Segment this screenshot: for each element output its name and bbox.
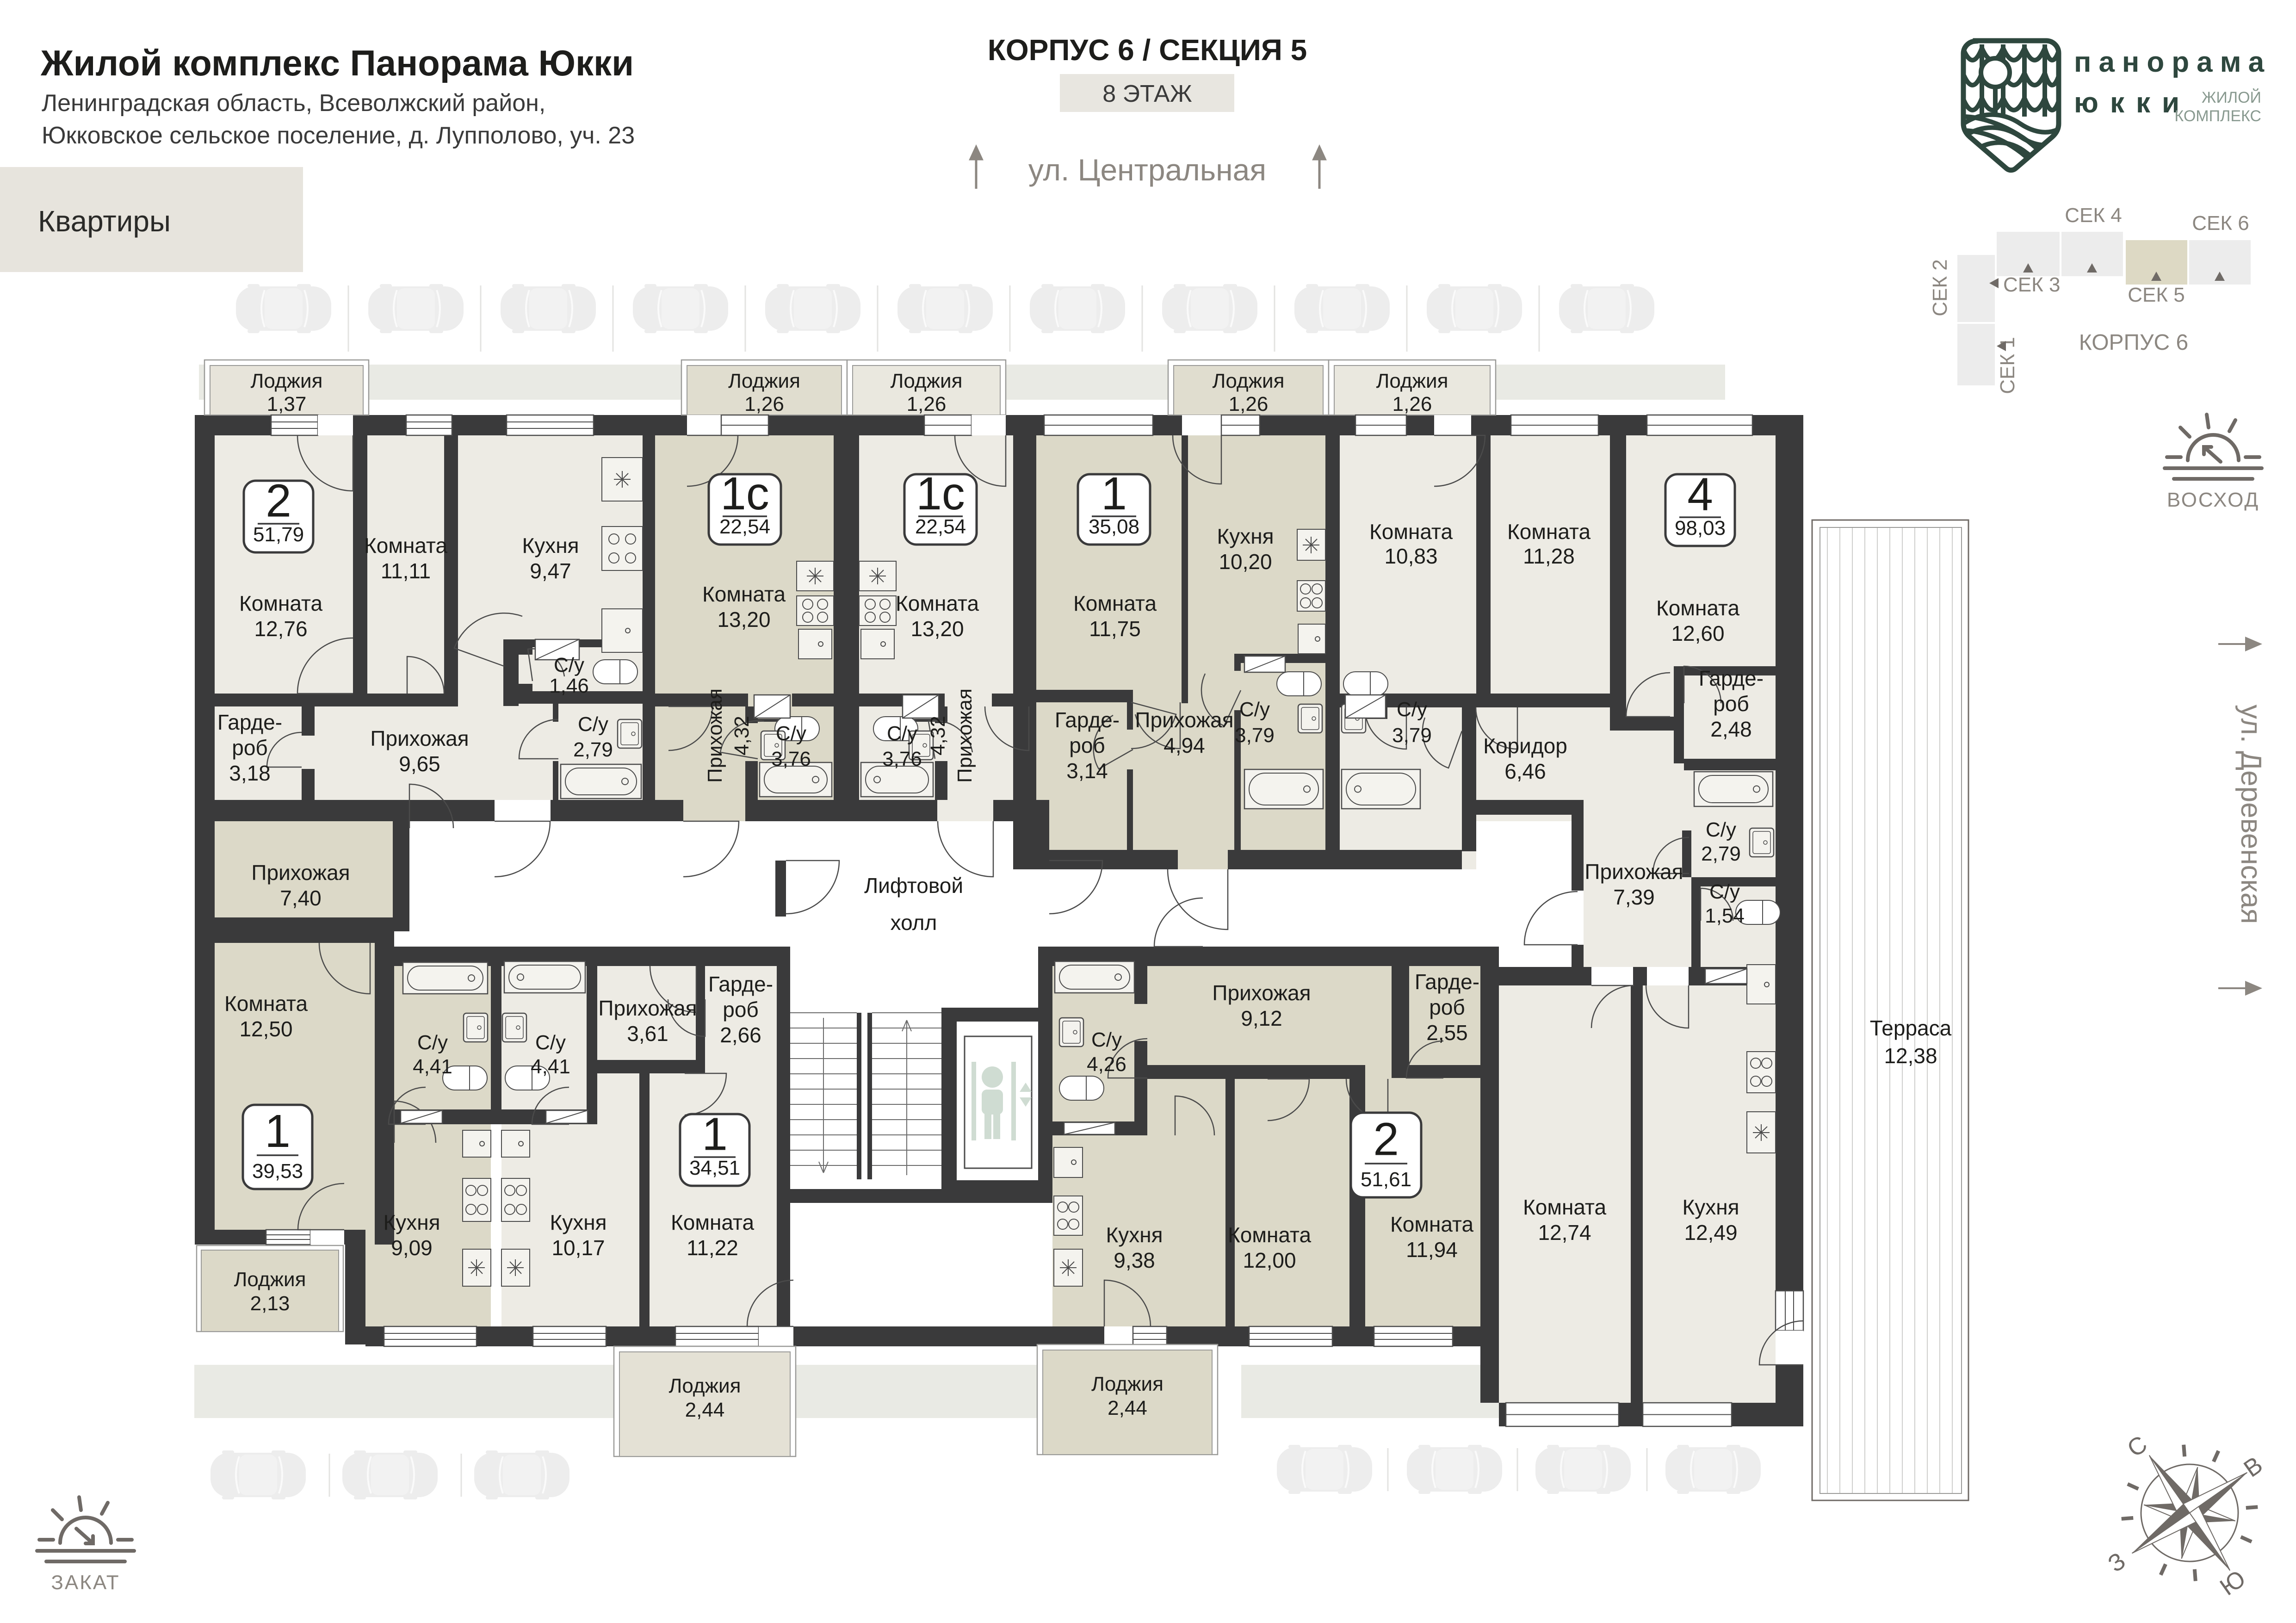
svg-text:Терраса: Терраса <box>1870 1016 1952 1040</box>
svg-text:ул. Деревенская: ул. Деревенская <box>2235 705 2267 924</box>
svg-text:12,60: 12,60 <box>1671 621 1724 645</box>
svg-text:СЕК 6: СЕК 6 <box>2192 212 2249 235</box>
svg-text:Комната: Комната <box>1656 596 1740 620</box>
svg-text:Жилой комплекс Панорама Юкки: Жилой комплекс Панорама Юкки <box>40 43 634 83</box>
svg-text:4,26: 4,26 <box>1087 1053 1126 1076</box>
svg-text:11,22: 11,22 <box>687 1236 738 1260</box>
svg-text:3,61: 3,61 <box>627 1022 668 1046</box>
svg-text:4,32: 4,32 <box>730 716 753 756</box>
svg-text:10,20: 10,20 <box>1219 550 1272 574</box>
svg-text:Кухня: Кухня <box>1682 1195 1739 1219</box>
svg-text:34,51: 34,51 <box>689 1157 740 1179</box>
svg-text:ВОСХОД: ВОСХОД <box>2167 489 2259 511</box>
svg-text:Прихожая: Прихожая <box>1212 981 1311 1005</box>
svg-text:3,18: 3,18 <box>229 761 271 785</box>
svg-text:1: 1 <box>1101 468 1127 520</box>
svg-text:3,76: 3,76 <box>882 748 922 770</box>
svg-text:Комната: Комната <box>702 582 786 606</box>
svg-text:Лоджия: Лоджия <box>669 1375 741 1397</box>
svg-text:10,17: 10,17 <box>551 1236 605 1260</box>
svg-text:51,61: 51,61 <box>1361 1168 1411 1191</box>
svg-text:1: 1 <box>265 1105 291 1157</box>
svg-text:ЖИЛОЙ: ЖИЛОЙ <box>2202 89 2261 106</box>
svg-text:роб: роб <box>723 997 759 1022</box>
svg-text:1с: 1с <box>720 468 769 520</box>
svg-text:Кухня: Кухня <box>1217 524 1274 548</box>
svg-text:1,26: 1,26 <box>1229 393 1269 415</box>
svg-text:Комната: Комната <box>1523 1195 1607 1219</box>
svg-text:4,41: 4,41 <box>531 1055 570 1078</box>
svg-text:39,53: 39,53 <box>252 1160 303 1183</box>
svg-text:2,79: 2,79 <box>573 738 613 761</box>
svg-text:Комната: Комната <box>364 533 448 558</box>
svg-text:11,11: 11,11 <box>381 559 431 583</box>
svg-text:С/у: С/у <box>578 713 608 736</box>
svg-text:роб: роб <box>1713 692 1749 716</box>
svg-text:2,66: 2,66 <box>720 1023 761 1047</box>
svg-text:10,83: 10,83 <box>1384 544 1437 568</box>
svg-text:Комната: Комната <box>1507 520 1591 544</box>
svg-text:КОРПУС 6: КОРПУС 6 <box>2079 330 2188 355</box>
svg-text:КОРПУС 6 / СЕКЦИЯ 5: КОРПУС 6 / СЕКЦИЯ 5 <box>988 33 1307 67</box>
svg-text:Лоджия: Лоджия <box>234 1268 306 1291</box>
svg-text:панорама: панорама <box>2074 46 2271 78</box>
svg-text:11,94: 11,94 <box>1406 1238 1458 1262</box>
svg-text:Комната: Комната <box>1390 1212 1474 1236</box>
svg-text:Лоджия: Лоджия <box>1213 370 1285 392</box>
svg-text:2,44: 2,44 <box>1108 1397 1147 1419</box>
svg-text:Комната: Комната <box>224 991 308 1016</box>
svg-text:С/у: С/у <box>1091 1028 1122 1051</box>
svg-text:8 ЭТАЖ: 8 ЭТАЖ <box>1102 81 1192 107</box>
svg-text:Юкковское сельское поселение,: Юкковское сельское поселение, д. Лупполо… <box>42 122 635 149</box>
svg-text:С/у: С/у <box>417 1031 448 1054</box>
svg-text:СЕК 5: СЕК 5 <box>2128 284 2185 306</box>
svg-text:2,13: 2,13 <box>250 1292 290 1315</box>
svg-text:Прихожая: Прихожая <box>370 726 469 750</box>
svg-text:Лоджия: Лоджия <box>1376 370 1448 392</box>
svg-text:С/у: С/у <box>554 654 584 676</box>
svg-text:22,54: 22,54 <box>719 515 770 538</box>
svg-text:Комната: Комната <box>1073 591 1157 615</box>
svg-text:3,79: 3,79 <box>1235 724 1275 747</box>
svg-text:Прихожая: Прихожая <box>598 996 697 1020</box>
svg-text:Комната: Комната <box>239 591 323 615</box>
svg-text:Кухня: Кухня <box>383 1210 440 1234</box>
svg-text:юкки: юкки <box>2074 87 2191 119</box>
svg-text:4,41: 4,41 <box>413 1055 452 1078</box>
svg-text:2: 2 <box>1373 1114 1399 1165</box>
svg-text:Прихожая: Прихожая <box>1135 708 1233 732</box>
svg-text:12,76: 12,76 <box>254 617 307 641</box>
svg-text:6,46: 6,46 <box>1504 759 1546 783</box>
svg-text:3,14: 3,14 <box>1066 759 1108 783</box>
svg-text:ЗАКАТ: ЗАКАТ <box>51 1571 120 1594</box>
svg-text:С/у: С/у <box>887 722 917 745</box>
svg-text:С/у: С/у <box>1397 698 1427 721</box>
svg-text:Коридор: Коридор <box>1483 734 1567 758</box>
svg-text:7,40: 7,40 <box>280 886 322 910</box>
svg-text:Лоджия: Лоджия <box>891 370 963 392</box>
svg-text:Гарде-: Гарде- <box>708 972 773 996</box>
svg-text:роб: роб <box>1429 995 1465 1019</box>
svg-text:35,08: 35,08 <box>1089 515 1139 538</box>
svg-text:Комната: Комната <box>1369 520 1453 544</box>
svg-text:3,76: 3,76 <box>771 748 811 770</box>
svg-text:Квартиры: Квартиры <box>38 204 171 238</box>
svg-text:Комната: Комната <box>1228 1223 1312 1247</box>
svg-text:9,65: 9,65 <box>399 752 440 776</box>
svg-text:4,32: 4,32 <box>927 716 949 756</box>
svg-text:Прихожая: Прихожая <box>704 688 726 783</box>
svg-text:12,49: 12,49 <box>1684 1220 1737 1245</box>
svg-text:4,94: 4,94 <box>1163 733 1205 757</box>
svg-text:11,28: 11,28 <box>1523 544 1575 568</box>
svg-text:С/у: С/у <box>535 1031 566 1054</box>
svg-text:12,50: 12,50 <box>239 1017 292 1041</box>
svg-text:Лифтовой: Лифтовой <box>864 873 963 898</box>
svg-text:Прихожая: Прихожая <box>953 688 976 783</box>
svg-text:9,09: 9,09 <box>391 1236 433 1260</box>
svg-text:2,44: 2,44 <box>685 1399 725 1421</box>
svg-text:С/у: С/у <box>1239 698 1270 721</box>
svg-text:Ленинградская область, Всеволж: Ленинградская область, Всеволжский район… <box>42 90 545 117</box>
svg-text:12,00: 12,00 <box>1243 1248 1296 1272</box>
svg-text:2: 2 <box>266 475 291 527</box>
svg-text:7,39: 7,39 <box>1613 885 1655 909</box>
svg-text:3,79: 3,79 <box>1392 724 1432 747</box>
svg-text:9,47: 9,47 <box>530 559 571 583</box>
svg-text:роб: роб <box>232 736 268 760</box>
svg-text:1,54: 1,54 <box>1705 904 1745 927</box>
svg-text:роб: роб <box>1069 733 1105 757</box>
svg-text:Кухня: Кухня <box>1106 1223 1163 1247</box>
svg-text:Прихожая: Прихожая <box>1584 860 1683 884</box>
svg-text:2,55: 2,55 <box>1426 1021 1468 1045</box>
svg-text:С/у: С/у <box>1709 880 1740 903</box>
svg-text:11,75: 11,75 <box>1089 617 1141 641</box>
svg-text:51,79: 51,79 <box>253 523 304 546</box>
svg-text:КОМПЛЕКС: КОМПЛЕКС <box>2174 107 2261 125</box>
svg-text:1,37: 1,37 <box>267 393 307 415</box>
svg-text:9,12: 9,12 <box>1241 1006 1282 1030</box>
svg-text:Лоджия: Лоджия <box>251 370 323 392</box>
svg-text:Лоджия: Лоджия <box>1091 1373 1163 1395</box>
svg-text:1с: 1с <box>916 468 965 520</box>
svg-text:С/у: С/у <box>776 722 806 745</box>
svg-text:1,26: 1,26 <box>1392 393 1432 415</box>
svg-text:1,26: 1,26 <box>744 393 784 415</box>
svg-text:СЕК 4: СЕК 4 <box>2065 204 2122 227</box>
svg-text:Гарде-: Гарде- <box>1055 708 1120 732</box>
svg-text:1: 1 <box>702 1109 728 1160</box>
svg-text:холл: холл <box>891 911 937 935</box>
svg-text:Комната: Комната <box>896 591 979 615</box>
svg-text:Лоджия: Лоджия <box>728 370 800 392</box>
svg-text:2,48: 2,48 <box>1710 717 1752 741</box>
svg-text:Кухня: Кухня <box>550 1210 606 1234</box>
svg-text:Гарде-: Гарде- <box>1699 666 1764 690</box>
svg-text:4: 4 <box>1687 469 1713 520</box>
svg-text:ул. Центральная: ул. Центральная <box>1028 153 1266 187</box>
svg-text:Гарде-: Гарде- <box>217 710 282 734</box>
svg-text:12,74: 12,74 <box>1538 1220 1591 1245</box>
svg-text:1,46: 1,46 <box>549 675 589 697</box>
svg-text:СЕК 2: СЕК 2 <box>1929 259 1951 316</box>
svg-text:Кухня: Кухня <box>522 533 579 558</box>
svg-text:12,38: 12,38 <box>1884 1044 1937 1068</box>
svg-text:Комната: Комната <box>671 1210 755 1234</box>
svg-text:98,03: 98,03 <box>1675 517 1726 539</box>
svg-text:13,20: 13,20 <box>910 617 964 641</box>
svg-text:Прихожая: Прихожая <box>251 861 350 885</box>
svg-text:1,26: 1,26 <box>907 393 947 415</box>
svg-text:СЕК 3: СЕК 3 <box>2003 273 2060 296</box>
svg-text:2,79: 2,79 <box>1701 842 1741 865</box>
svg-text:13,20: 13,20 <box>717 607 770 632</box>
svg-text:Гарде-: Гарде- <box>1415 970 1479 994</box>
svg-text:С/у: С/у <box>1706 818 1736 841</box>
svg-text:9,38: 9,38 <box>1114 1248 1155 1272</box>
svg-text:22,54: 22,54 <box>915 515 966 538</box>
